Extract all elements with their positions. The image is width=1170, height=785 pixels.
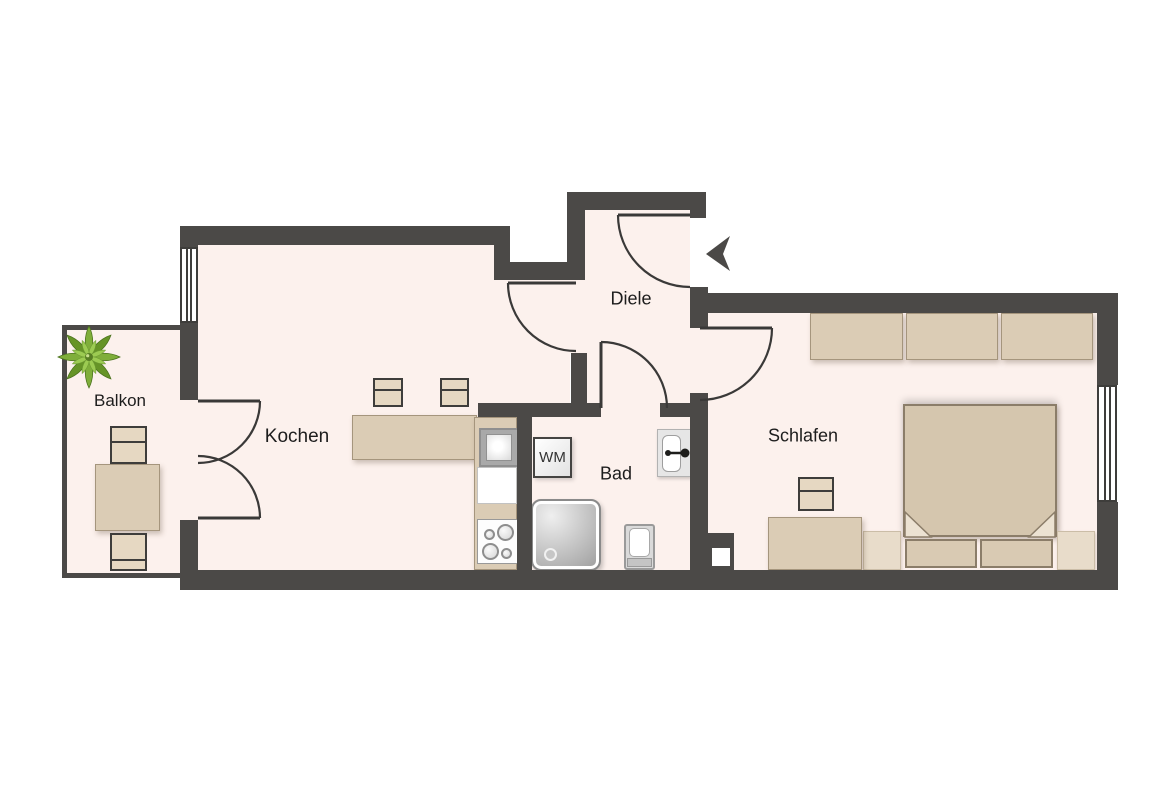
- shower: [531, 499, 601, 571]
- kitchen-sink-unit: [479, 428, 519, 467]
- shaft-notch: [712, 548, 730, 566]
- washing-machine: WM: [533, 437, 572, 478]
- toilet: [624, 524, 655, 570]
- schlafen-window-icon: [1097, 385, 1117, 502]
- wall-bad-top-left: [478, 403, 601, 417]
- wardrobe-section-2: [906, 313, 998, 360]
- bar-stool-1: [373, 378, 403, 407]
- double-bed: [903, 404, 1057, 537]
- wall-bottom: [180, 570, 1118, 590]
- wall-diele-top: [567, 192, 706, 210]
- wm-label: WM: [539, 449, 566, 466]
- stove: [477, 519, 518, 564]
- floor-plan: WMBalkonKochenDieleBadSchlafen: [0, 0, 1170, 785]
- kitchen-cabinet: [477, 467, 517, 504]
- wall-right-upper: [1097, 293, 1118, 385]
- wall-left-a: [180, 226, 198, 248]
- wall-kochen-stub: [571, 353, 587, 405]
- bar-stool-2: [440, 378, 469, 407]
- floor-kochen-a: [198, 245, 510, 572]
- wall-balcony-top: [62, 325, 182, 330]
- wall-left-b: [180, 322, 198, 400]
- pillow-right: [980, 539, 1053, 568]
- floor-balcony-door-gap: [180, 400, 198, 520]
- room-label-bad: Bad: [600, 464, 632, 485]
- wall-schlafen-top: [706, 293, 1118, 313]
- wall-balcony-left: [62, 325, 67, 578]
- wall-kochen-top: [180, 226, 510, 245]
- wardrobe-section-3: [1001, 313, 1093, 360]
- wall-entrance-jamb: [690, 210, 706, 218]
- balcony-chair-top: [110, 426, 147, 464]
- floor-bad-door-gap: [601, 403, 660, 417]
- pillow-left: [905, 539, 977, 568]
- entrance-arrow-icon: [706, 236, 730, 271]
- wall-left-c: [180, 520, 198, 572]
- room-label-balkon: Balkon: [94, 391, 146, 411]
- room-label-kochen: Kochen: [265, 426, 329, 448]
- balcony-table: [95, 464, 160, 531]
- wardrobe-section-1: [810, 313, 903, 360]
- nightstand-left: [863, 531, 901, 570]
- kitchen-counter: [352, 415, 477, 460]
- nightstand-right: [1057, 531, 1095, 570]
- floor-schlafen-door-gap: [690, 328, 708, 393]
- bedroom-stool: [798, 477, 834, 511]
- floor-kochen-door-gap: [567, 280, 585, 353]
- bathroom-sink: [657, 429, 691, 477]
- room-label-diele: Diele: [610, 289, 651, 310]
- kochen-window-icon: [180, 247, 198, 323]
- wall-kochen-bad-divider: [517, 415, 532, 572]
- balcony-chair-bottom: [110, 533, 147, 571]
- dresser: [768, 517, 862, 570]
- wall-balcony-bottom: [62, 573, 182, 578]
- room-label-schlafen: Schlafen: [768, 426, 838, 447]
